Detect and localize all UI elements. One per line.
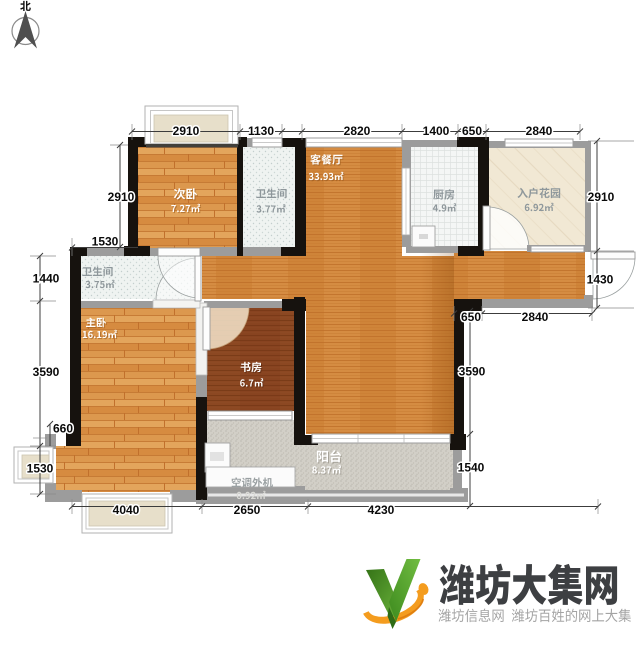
svg-text:3590: 3590: [33, 365, 60, 379]
svg-text:1540: 1540: [458, 460, 485, 474]
svg-text:4230: 4230: [368, 503, 395, 517]
svg-text:3590: 3590: [459, 364, 486, 378]
svg-text:2910: 2910: [108, 190, 135, 204]
svg-text:2650: 2650: [234, 503, 261, 517]
svg-text:1430: 1430: [587, 272, 614, 286]
svg-text:1530: 1530: [27, 461, 54, 475]
svg-text:660: 660: [53, 421, 73, 435]
svg-text:1440: 1440: [33, 271, 60, 285]
svg-text:650: 650: [461, 310, 481, 324]
svg-text:2910: 2910: [588, 190, 615, 204]
svg-text:1130: 1130: [248, 124, 274, 138]
svg-text:2840: 2840: [526, 124, 553, 138]
svg-text:2910: 2910: [173, 124, 200, 138]
svg-text:4040: 4040: [113, 503, 140, 517]
svg-text:1530: 1530: [92, 234, 119, 248]
svg-text:2840: 2840: [522, 310, 549, 324]
svg-text:1400: 1400: [423, 124, 450, 138]
svg-text:650: 650: [462, 124, 482, 138]
svg-text:2820: 2820: [344, 124, 371, 138]
